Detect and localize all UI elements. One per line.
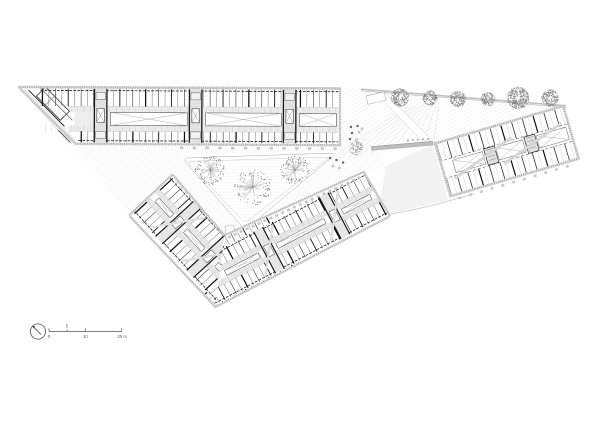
svg-text:20 m: 20 m [118, 334, 128, 339]
svg-text:10: 10 [83, 334, 88, 339]
